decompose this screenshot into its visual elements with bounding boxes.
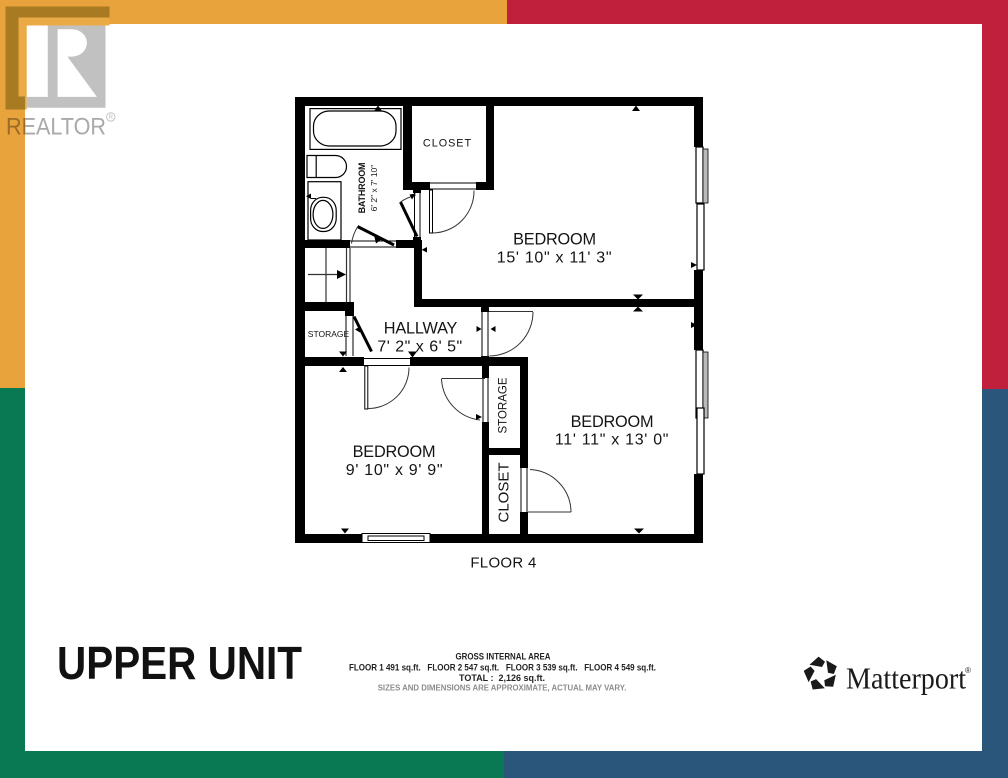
svg-text:15' 10" x 11' 3": 15' 10" x 11' 3"	[497, 250, 613, 267]
svg-text:REALTOR: REALTOR	[6, 114, 106, 141]
svg-text:UPPER UNIT: UPPER UNIT	[57, 637, 302, 689]
svg-text:CLOSET: CLOSET	[495, 462, 512, 522]
svg-text:STORAGE: STORAGE	[308, 329, 350, 339]
svg-text:SIZES AND DIMENSIONS ARE APPRO: SIZES AND DIMENSIONS ARE APPROXIMATE, AC…	[378, 684, 627, 693]
svg-text:CLOSET: CLOSET	[423, 138, 472, 150]
svg-text:BATHROOM: BATHROOM	[357, 163, 367, 214]
svg-text:6' 2" x 7' 10": 6' 2" x 7' 10"	[369, 165, 379, 212]
svg-text:11' 11" x 13' 0": 11' 11" x 13' 0"	[555, 432, 669, 449]
svg-text:9' 10" x 9' 9": 9' 10" x 9' 9"	[346, 462, 444, 479]
svg-text:Matterport: Matterport	[846, 661, 966, 696]
svg-text:R: R	[109, 115, 114, 121]
svg-text:GROSS INTERNAL AREA: GROSS INTERNAL AREA	[456, 652, 551, 662]
svg-text:FLOOR 4: FLOOR 4	[470, 555, 536, 572]
svg-text:BEDROOM: BEDROOM	[513, 231, 596, 249]
svg-text:7' 2" x 6' 5": 7' 2" x 6' 5"	[377, 339, 462, 356]
svg-text:HALLWAY: HALLWAY	[384, 320, 458, 338]
svg-text:®: ®	[965, 666, 971, 675]
svg-text:FLOOR 1 491 sq.ft. FLOOR 2 5: FLOOR 1 491 sq.ft. FLOOR 2 547 sq.ft. FL…	[349, 663, 656, 673]
svg-text:TOTAL : 2,126 sq.ft.: TOTAL : 2,126 sq.ft.	[459, 673, 545, 683]
svg-text:BEDROOM: BEDROOM	[571, 413, 654, 431]
svg-text:BEDROOM: BEDROOM	[353, 443, 436, 461]
svg-text:STORAGE: STORAGE	[498, 377, 510, 433]
